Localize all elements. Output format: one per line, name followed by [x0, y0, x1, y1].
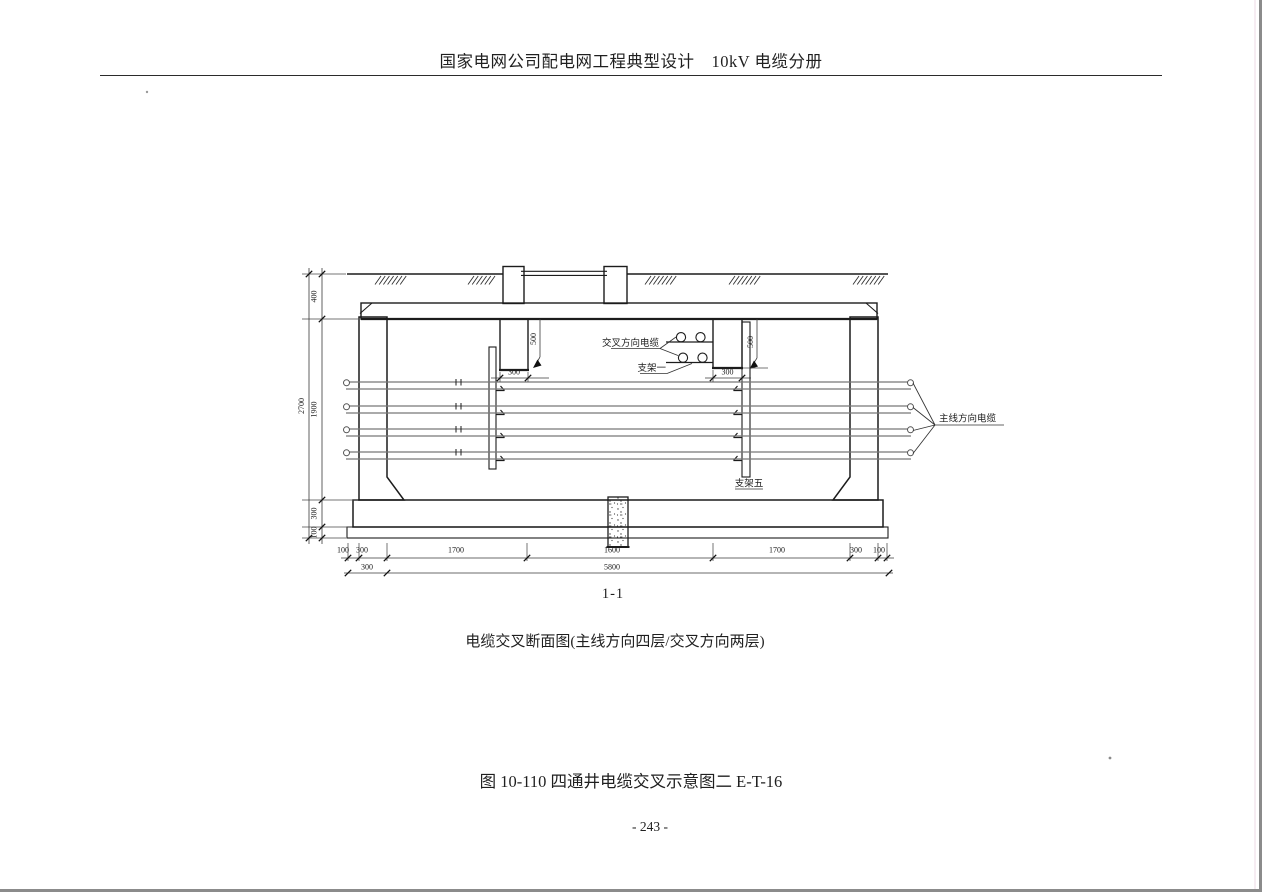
- cable-well-section-drawing: 交叉方向电缆 支架一 主线方向电缆 支架五 2700 400 1900 300 …: [0, 0, 1262, 892]
- main-cable-label: 主线方向电缆: [939, 413, 997, 425]
- crossing-cable-label: 交叉方向电缆: [602, 337, 660, 349]
- cable-layer-4: [344, 449, 914, 459]
- dim-bottom-1700-right: 1700: [769, 546, 785, 555]
- top-slab: [360, 303, 878, 319]
- dim-bottom-300-left: 300: [356, 546, 368, 555]
- left-bracket-column: [489, 347, 505, 469]
- dim-cushion: 100: [310, 527, 319, 539]
- dim-hang-right-width: 300: [722, 368, 734, 377]
- dim-cover-depth: 400: [310, 291, 319, 303]
- ground-line: [347, 274, 888, 285]
- soil-hatch: [375, 276, 884, 285]
- dim-inner-height: 1900: [310, 402, 319, 418]
- cable-layer-2: [344, 403, 914, 413]
- main-cables: [344, 379, 914, 459]
- right-wall: [833, 317, 878, 500]
- dim-overall-width: 5800: [604, 563, 620, 572]
- cable-layer-3: [344, 426, 914, 436]
- bracket-one-label: 支架一: [637, 362, 666, 374]
- left-wall: [359, 317, 404, 500]
- manhole-neck: [503, 267, 627, 304]
- dim-bottom-100-right: 100: [873, 546, 885, 555]
- left-hanging-wall: [499, 319, 529, 370]
- dim-hang-left-width: 300: [508, 368, 520, 377]
- dim-hang-right-depth: 500: [746, 336, 755, 348]
- dim-wall-offset: 300: [361, 563, 373, 572]
- dim-hang-left-depth: 500: [529, 333, 538, 345]
- dim-overall-height: 2700: [297, 398, 306, 414]
- speck: [146, 91, 148, 93]
- dim-bottom-1600: 1600: [604, 546, 620, 555]
- cable-layer-1: [344, 379, 914, 389]
- dim-base-slab: 300: [310, 508, 319, 520]
- dim-bottom-300-right: 300: [850, 546, 862, 555]
- dim-bottom-100-left: 100: [337, 546, 349, 555]
- speck: [1109, 757, 1112, 760]
- hanging-wall-dimensions: 500 300 500 300: [491, 319, 768, 382]
- crossing-cable-assembly: [666, 333, 713, 363]
- bottom-dimensions: 100 300 1700 1600 1700 300 100 300 5800: [337, 543, 894, 576]
- right-hanging-wall: [712, 319, 743, 368]
- bracket-five-label: 支架五: [735, 478, 764, 490]
- sump-pit: [607, 497, 630, 547]
- dim-bottom-1700-left: 1700: [448, 546, 464, 555]
